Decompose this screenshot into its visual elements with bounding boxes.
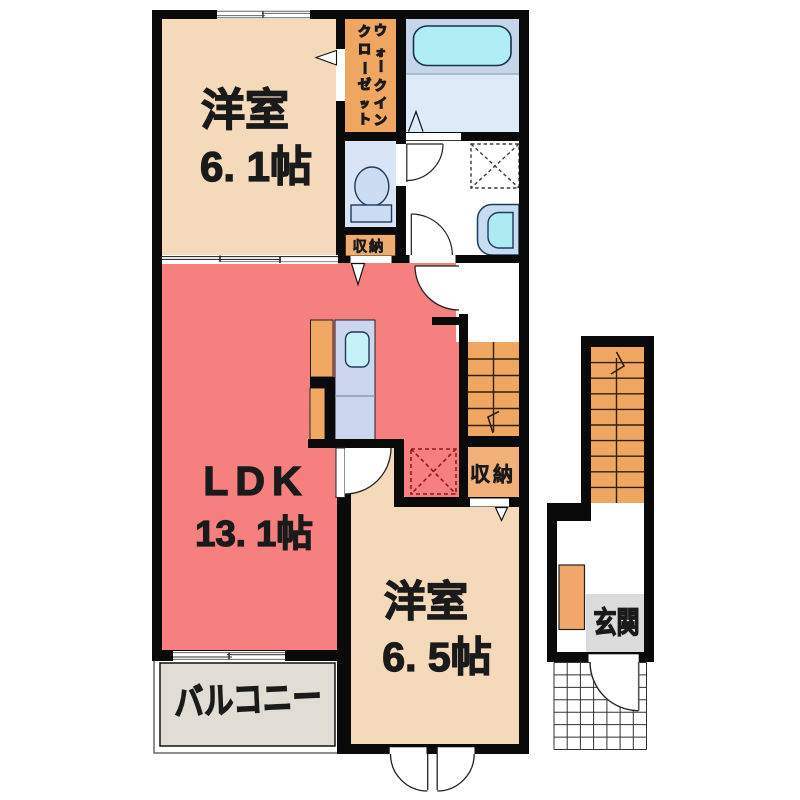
svg-text:ー: ー [357,61,372,74]
svg-text:6. 1帖: 6. 1帖 [200,143,312,190]
svg-text:収納: 収納 [470,462,516,486]
svg-text:ォ: ォ [375,47,386,59]
svg-text:6. 5帖: 6. 5帖 [382,634,491,680]
svg-text:ウ: ウ [374,23,387,38]
svg-text:ゼ: ゼ [358,77,371,92]
svg-text:ン: ン [374,113,387,128]
svg-text:収納: 収納 [353,238,386,256]
svg-text:LDK: LDK [203,458,308,504]
svg-text:洋室: 洋室 [384,578,468,625]
svg-text:ッ: ッ [359,98,370,110]
svg-text:13. 1帖: 13. 1帖 [195,513,313,554]
svg-text:ロ: ロ [358,42,371,57]
svg-text:玄関: 玄関 [594,606,640,640]
svg-text:ー: ー [373,59,388,72]
svg-text:ク: ク [374,78,387,93]
svg-text:バルコニー: バルコニー [173,676,323,723]
svg-text:イ: イ [374,96,387,111]
svg-text:ト: ト [358,112,371,127]
svg-text:洋室: 洋室 [201,85,289,135]
svg-text:ク: ク [358,24,371,39]
